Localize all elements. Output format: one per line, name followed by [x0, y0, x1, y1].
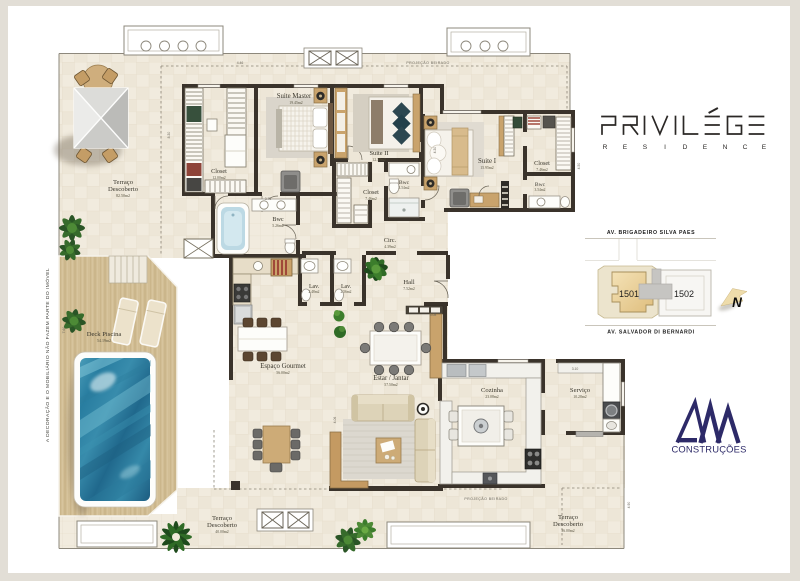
- svg-text:7.52m2: 7.52m2: [403, 287, 415, 291]
- svg-text:1502: 1502: [674, 289, 694, 299]
- svg-text:I: I: [664, 144, 666, 151]
- svg-text:57.50m2: 57.50m2: [384, 383, 397, 387]
- svg-text:8.30: 8.30: [167, 132, 171, 139]
- svg-text:12.39m2: 12.39m2: [372, 158, 385, 162]
- svg-text:Terraço: Terraço: [212, 515, 233, 522]
- svg-text:2.56m2: 2.56m2: [341, 290, 352, 294]
- svg-text:Bwc: Bwc: [272, 216, 284, 223]
- svg-text:Circ.: Circ.: [384, 237, 397, 244]
- svg-text:E: E: [762, 144, 767, 151]
- svg-text:A DECORAÇÃO E O MOBILIÁRIO: A DECORAÇÃO E O MOBILIÁRIO NÃO FAZEM PAR…: [44, 268, 51, 442]
- svg-text:N: N: [732, 295, 742, 310]
- svg-text:Deck Piscina: Deck Piscina: [87, 331, 122, 338]
- svg-text:N: N: [723, 144, 728, 151]
- svg-text:Terraço: Terraço: [113, 179, 134, 186]
- svg-text:4.50: 4.50: [577, 163, 581, 170]
- svg-text:Hall: Hall: [403, 279, 415, 286]
- svg-text:PROJEÇÃO BEIRADO: PROJEÇÃO BEIRADO: [406, 60, 449, 65]
- svg-text:Suite Master: Suite Master: [277, 93, 312, 100]
- svg-text:1501: 1501: [619, 289, 639, 299]
- svg-text:AV. SALVADOR DI BERNARDI: AV. SALVADOR DI BERNARDI: [607, 330, 694, 336]
- svg-text:C: C: [743, 144, 748, 151]
- svg-text:4.08: 4.08: [430, 313, 437, 317]
- svg-text:Serviço: Serviço: [570, 387, 591, 394]
- svg-text:R: R: [603, 144, 608, 151]
- svg-text:Terraço: Terraço: [558, 514, 579, 521]
- svg-text:4.46: 4.46: [237, 61, 244, 65]
- svg-text:Closet: Closet: [534, 160, 550, 167]
- svg-text:56.00m2: 56.00m2: [276, 371, 289, 375]
- svg-text:Descoberto: Descoberto: [207, 522, 238, 529]
- svg-text:3.75: 3.75: [265, 197, 272, 201]
- svg-text:82.50m2: 82.50m2: [116, 193, 130, 198]
- svg-text:2.48m2: 2.48m2: [309, 290, 320, 294]
- svg-text:12.00m2: 12.00m2: [212, 176, 225, 180]
- svg-text:7.46m2: 7.46m2: [365, 197, 377, 201]
- svg-text:36.00m2: 36.00m2: [561, 529, 574, 533]
- svg-text:5.26m2: 5.26m2: [272, 224, 284, 228]
- svg-text:D: D: [683, 144, 688, 151]
- svg-text:S: S: [643, 144, 648, 151]
- svg-text:Espaço Gourmet: Espaço Gourmet: [260, 363, 306, 370]
- svg-text:7.60: 7.60: [62, 327, 66, 334]
- svg-text:CONSTRUÇÕES: CONSTRUÇÕES: [671, 444, 746, 455]
- svg-text:Cozinha: Cozinha: [481, 387, 503, 394]
- svg-text:Suite I: Suite I: [478, 158, 497, 165]
- svg-text:4.30: 4.30: [433, 147, 437, 154]
- svg-text:4.39m2: 4.39m2: [384, 245, 396, 249]
- svg-text:40.00m2: 40.00m2: [215, 530, 228, 534]
- svg-text:AV. BRIGADEIRO SILVA PAES: AV. BRIGADEIRO SILVA PAES: [607, 230, 695, 236]
- svg-text:Estar / Jantar: Estar / Jantar: [373, 375, 409, 382]
- svg-text:Descoberto: Descoberto: [108, 186, 139, 193]
- svg-text:Closet: Closet: [363, 189, 379, 196]
- svg-text:19.45m2: 19.45m2: [289, 101, 302, 105]
- svg-text:E: E: [623, 144, 628, 151]
- svg-text:3.54m2: 3.54m2: [399, 186, 410, 190]
- svg-text:10.28m2: 10.28m2: [573, 395, 586, 399]
- svg-text:E: E: [703, 144, 708, 151]
- svg-text:PROJEÇÃO BEIRADO: PROJEÇÃO BEIRADO: [464, 496, 507, 501]
- svg-text:15.95m2: 15.95m2: [480, 166, 493, 170]
- svg-text:Suite II: Suite II: [370, 150, 389, 157]
- svg-text:Descoberto: Descoberto: [553, 521, 584, 528]
- svg-text:4.06: 4.06: [333, 417, 337, 424]
- svg-text:Closet: Closet: [211, 168, 227, 175]
- svg-text:3.10: 3.10: [572, 367, 579, 371]
- svg-text:4.90: 4.90: [627, 502, 631, 509]
- svg-text:54.19m2: 54.19m2: [97, 338, 111, 343]
- svg-text:7.46m2: 7.46m2: [536, 168, 548, 172]
- svg-text:23.08m2: 23.08m2: [485, 395, 498, 399]
- svg-text:3.54m2: 3.54m2: [535, 188, 546, 192]
